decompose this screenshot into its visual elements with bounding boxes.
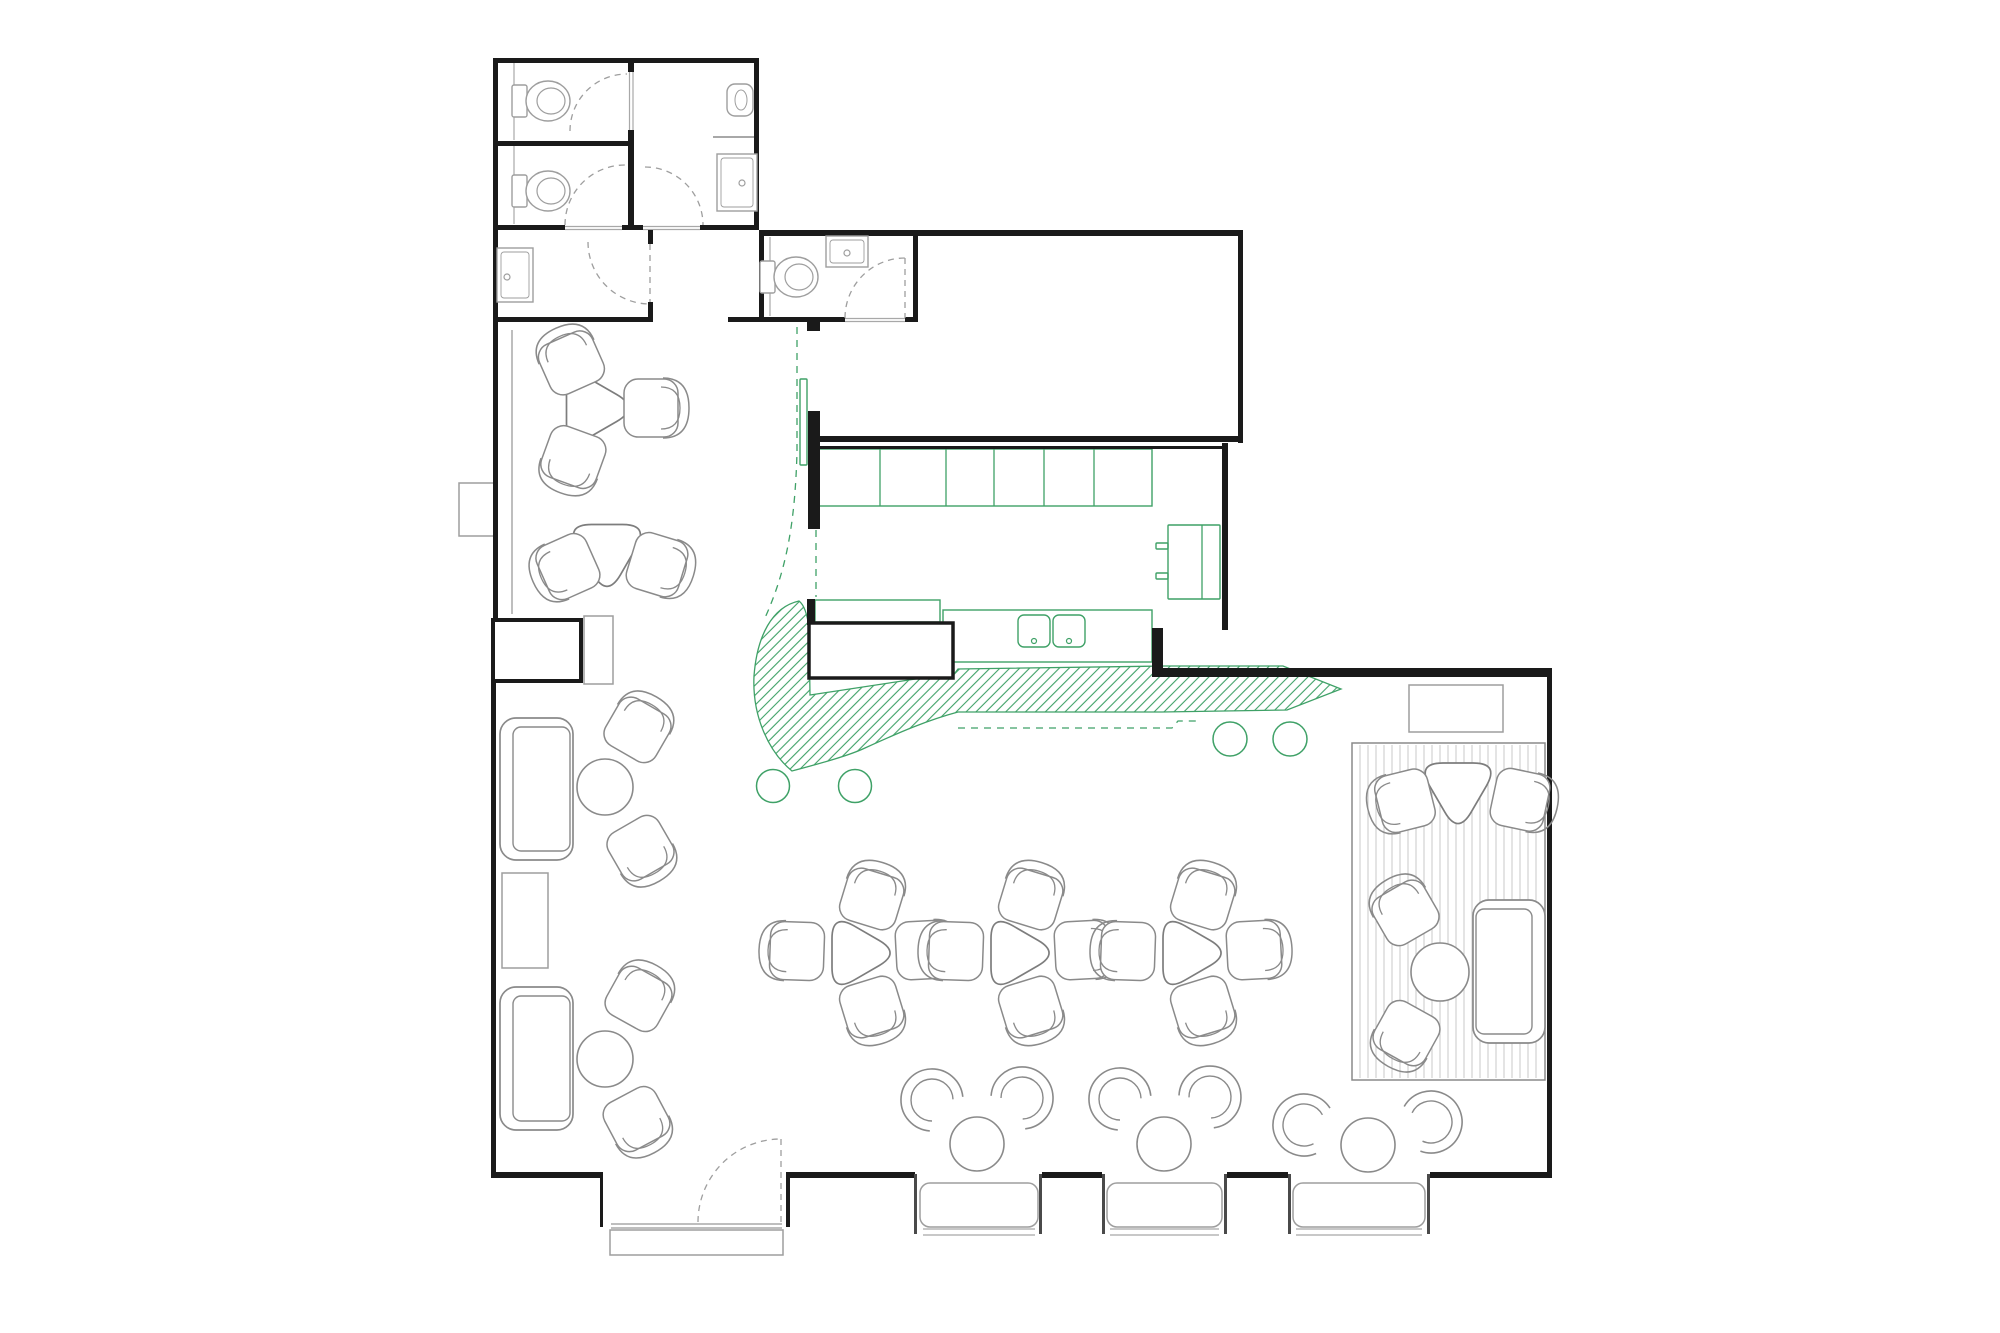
dining-chair [599, 951, 683, 1037]
wall-segment [812, 436, 1243, 442]
tub-chair [1089, 1068, 1151, 1130]
tub-chair [1404, 1091, 1462, 1153]
wall-segment [493, 317, 653, 322]
wall-segment [1042, 1172, 1102, 1178]
stool-circle [1273, 722, 1307, 756]
wall-segment [491, 681, 496, 1178]
fridge [1168, 525, 1220, 599]
wall-segment [493, 225, 565, 230]
toilet-bowl [526, 81, 570, 121]
floor-plan-svg: Restaurant floor plan with bar, kitchen,… [0, 0, 2000, 1333]
wall-segment [1152, 668, 1552, 677]
chair-seat [1100, 921, 1156, 981]
triangle-table [1163, 922, 1221, 985]
sideboard [1409, 685, 1503, 732]
sofa [1473, 900, 1545, 1043]
bar-counter-block [809, 623, 953, 678]
wall-segment [493, 58, 759, 63]
sofa [500, 987, 573, 1130]
faucet-dot [1032, 639, 1037, 644]
wall-segment [918, 230, 1243, 236]
chair-seat [1488, 766, 1553, 834]
dining-chair [1225, 918, 1293, 981]
tub-chair-outer [1273, 1094, 1330, 1156]
toilet-tank [512, 85, 527, 117]
dining-chair [758, 920, 825, 982]
toilet-icon [512, 81, 570, 121]
wall-segment [786, 1172, 790, 1227]
round-table [1137, 1117, 1191, 1171]
urinal-body [727, 84, 753, 116]
kitchen-sink-counter [943, 610, 1152, 662]
wall-segment [759, 230, 918, 236]
tub-chair-outer [1404, 1091, 1462, 1153]
toilet-icon [760, 257, 818, 297]
wall-segment [493, 141, 634, 146]
round-table [950, 1117, 1004, 1171]
stool-circle [757, 770, 790, 803]
chair-seat [598, 1082, 675, 1157]
wall-pier-west [459, 483, 497, 536]
chair-seat [928, 921, 984, 981]
service-path-dashed [764, 327, 797, 620]
round-table [1411, 943, 1469, 1001]
toilet-bowl [774, 257, 818, 297]
window-jamb [1039, 1174, 1042, 1234]
kitchen-back-counter [818, 449, 1152, 506]
door-swing-arc [565, 165, 625, 225]
faucet-dot [1067, 639, 1072, 644]
wall-segment [728, 317, 845, 322]
window-bench [1107, 1183, 1222, 1227]
fridge-handle [1156, 573, 1168, 579]
wall-segment [648, 230, 653, 244]
toilet-bowl [526, 171, 570, 211]
wall-segment [622, 225, 643, 230]
wall-segment [1430, 1172, 1552, 1178]
sink-icon [717, 154, 757, 211]
service-console [584, 616, 613, 684]
wall-pier [493, 620, 581, 681]
fixtures-group [497, 81, 868, 302]
stool-circle [839, 770, 872, 803]
door-swing-arc [588, 242, 650, 304]
round-table [1341, 1118, 1395, 1172]
wall-segment [790, 1172, 915, 1178]
dining-chair [624, 378, 689, 438]
window-jamb [1224, 1174, 1227, 1234]
green-service-group [754, 327, 1341, 803]
sink-basin [1053, 615, 1085, 647]
wall-segment [493, 322, 498, 622]
wall-segment [807, 322, 820, 331]
service-path-dashed [958, 721, 1200, 728]
fridge-handle [1156, 543, 1168, 549]
sink-basin [717, 154, 757, 211]
dining-chair [532, 421, 611, 503]
bar-top [815, 600, 940, 622]
triangle-table [832, 922, 890, 985]
sink-basin [826, 236, 868, 267]
wall-segment [1238, 230, 1243, 443]
sink-basin [497, 248, 533, 302]
window-bench [920, 1183, 1038, 1227]
wall-segment [648, 302, 653, 322]
dining-chair [598, 682, 682, 768]
pass-shelf [800, 379, 807, 465]
sofa-seat [513, 727, 570, 851]
triangle-table [991, 922, 1049, 985]
wall-segment [628, 58, 634, 72]
window-jamb [1288, 1174, 1291, 1234]
round-table [577, 1031, 633, 1087]
door-swing-arc [698, 1139, 781, 1222]
floor-plan-canvas: Restaurant floor plan with bar, kitchen,… [0, 0, 2000, 1333]
toilet-tank [760, 261, 775, 293]
window-jamb [1102, 1174, 1105, 1234]
tub-chair [991, 1067, 1053, 1129]
chair-seat [600, 961, 677, 1036]
toilet-tank [512, 175, 527, 207]
entry-mat [610, 1230, 783, 1255]
wall-segment [807, 599, 815, 625]
round-table [577, 759, 633, 815]
dining-chair [597, 1081, 680, 1167]
urinal-icon [727, 84, 753, 116]
window-jamb [1427, 1174, 1430, 1234]
chair-seat [769, 921, 825, 981]
door-swing-arc [570, 74, 627, 131]
window-seats-group [920, 1183, 1425, 1227]
wall-segment [1222, 443, 1228, 630]
wall-segment [913, 230, 918, 322]
sofa-seat [513, 996, 570, 1121]
sofa-seat [1476, 909, 1532, 1034]
dining-chair [601, 810, 685, 896]
wall-segment [1547, 668, 1552, 1178]
wall-segment [600, 1172, 603, 1227]
wall-segment [812, 446, 1228, 449]
wall-segment [700, 225, 759, 230]
window-bench [1293, 1183, 1425, 1227]
stool-circle [1213, 722, 1247, 756]
sink-basin [1018, 615, 1050, 647]
tub-chair [901, 1069, 963, 1131]
sink-icon [826, 236, 868, 267]
toilet-icon [512, 171, 570, 211]
tub-chair [1273, 1094, 1330, 1156]
window-jamb [914, 1174, 917, 1234]
door-swing-arc [645, 167, 703, 225]
sofa [500, 718, 573, 860]
chair-seat [1226, 920, 1283, 981]
wall-segment [808, 411, 820, 529]
chair-seat [624, 379, 678, 437]
tub-chair [1179, 1066, 1241, 1128]
wall-segment [493, 1172, 600, 1178]
wall-segment [1227, 1172, 1288, 1178]
sink-icon [497, 248, 533, 302]
low-table [502, 873, 548, 968]
